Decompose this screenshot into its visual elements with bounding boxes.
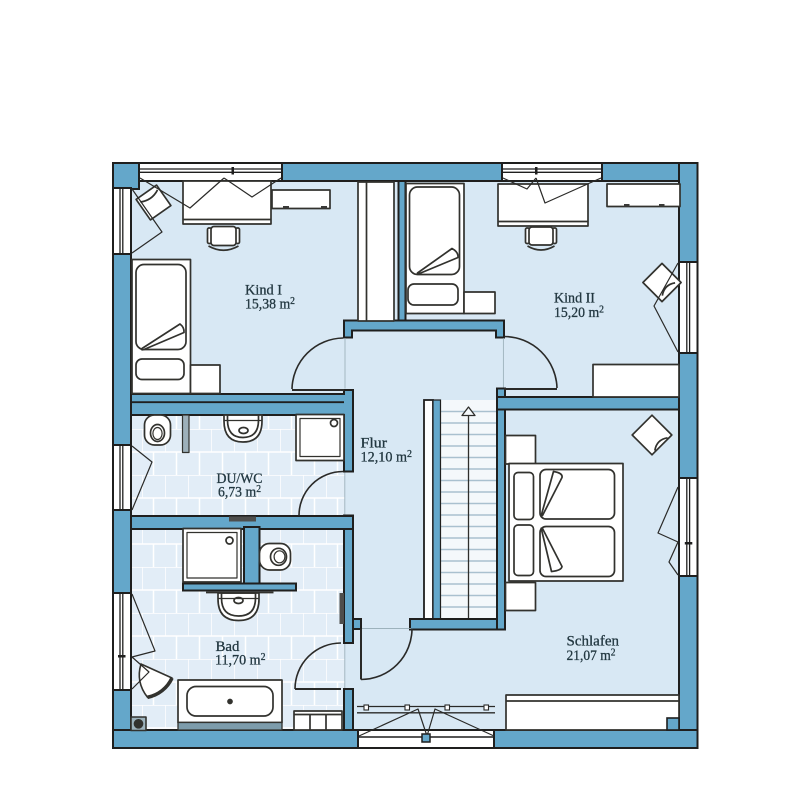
svg-text:15,38 m2: 15,38 m2 — [245, 296, 295, 312]
svg-text:11,70 m2: 11,70 m2 — [215, 652, 266, 668]
svg-text:21,07 m2: 21,07 m2 — [567, 648, 616, 664]
svg-text:12,10 m2: 12,10 m2 — [361, 449, 413, 465]
svg-text:15,20 m2: 15,20 m2 — [554, 305, 604, 321]
svg-text:6,73 m2: 6,73 m2 — [218, 484, 261, 500]
